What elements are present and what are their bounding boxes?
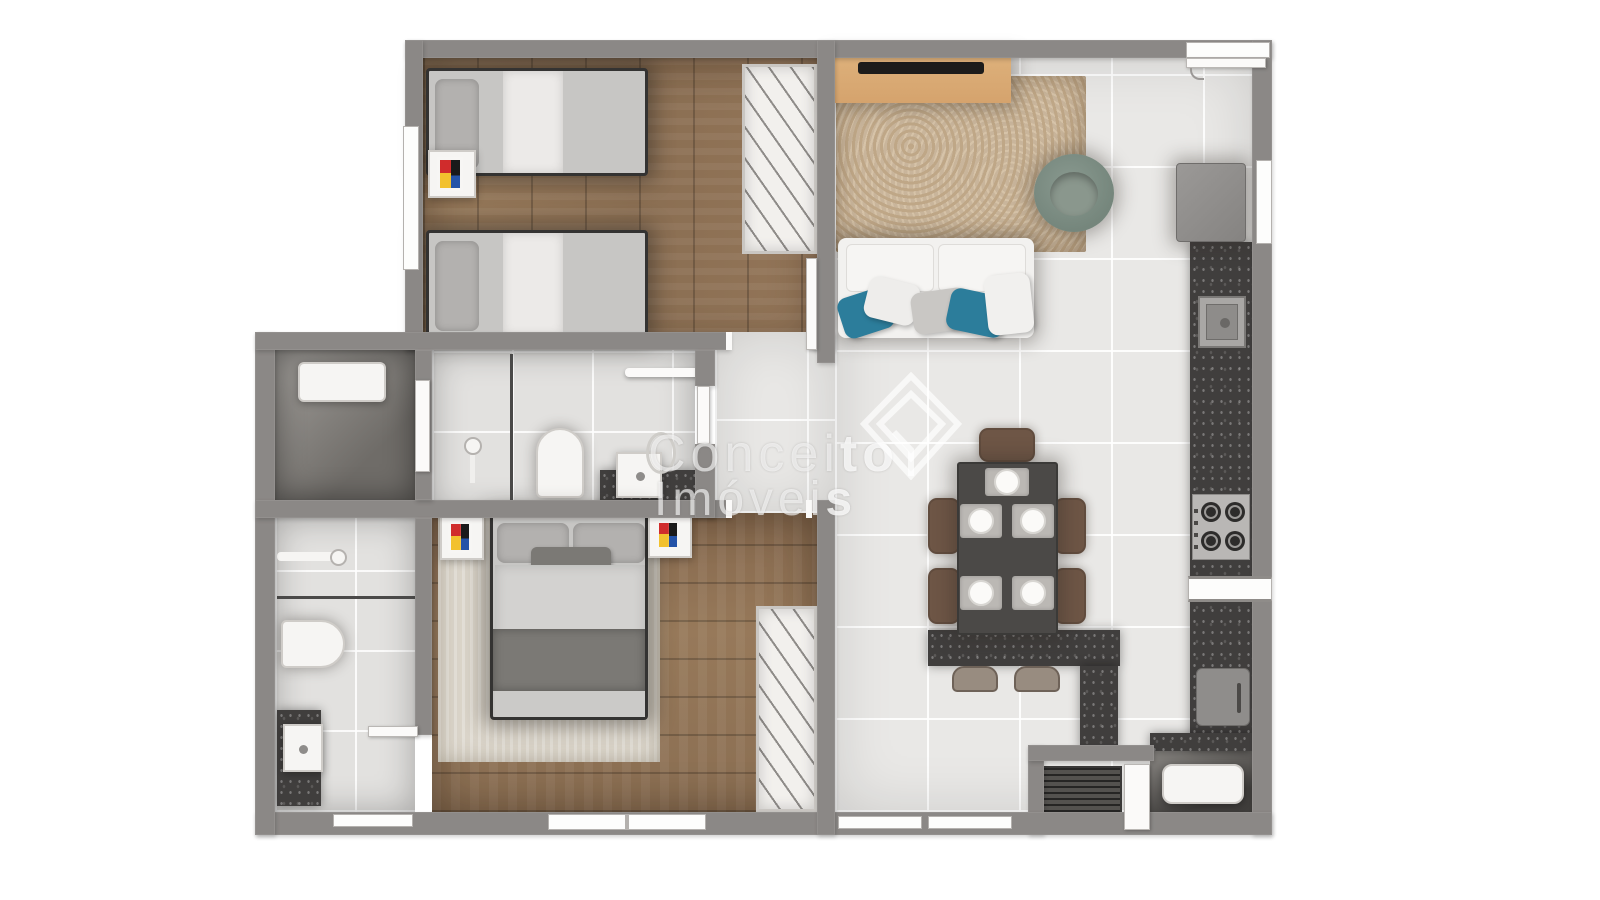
wall-master-right	[817, 500, 835, 835]
kitchen-faucet	[1220, 318, 1230, 328]
master-door-jamb-right	[806, 500, 812, 518]
laundry-sink	[1162, 764, 1244, 804]
plate-2	[1020, 508, 1046, 534]
peninsula-counter-horizontal	[928, 630, 1120, 666]
master-foot-mattress	[495, 691, 645, 717]
kitchen-pass-window	[1188, 576, 1272, 602]
stove	[1192, 494, 1250, 560]
bed2-pillow	[435, 241, 479, 331]
service-unit	[298, 362, 386, 402]
shower-arm-2	[277, 552, 335, 561]
wall-bath2-right	[415, 518, 432, 735]
sofa	[838, 238, 1034, 338]
plate-4	[1020, 580, 1046, 606]
kitchen-sink	[1198, 296, 1246, 348]
master-wall-art-right	[656, 520, 680, 550]
bathroom2-door	[368, 726, 418, 737]
bedroom1-wardrobe	[742, 64, 817, 254]
built-in-oven	[1196, 668, 1250, 726]
service-room-door	[415, 380, 430, 472]
shower-head-1	[464, 437, 482, 455]
master-wardrobe	[756, 606, 817, 812]
bedroom1-door	[806, 258, 817, 350]
wall-left	[255, 332, 275, 835]
wall-bath1-right-a	[695, 350, 715, 386]
wall-bath1-right-b	[695, 444, 715, 518]
master-blanket	[493, 629, 645, 691]
laundry-door	[1124, 764, 1150, 830]
bed1-runner	[503, 71, 563, 173]
vanity2-faucet	[299, 745, 308, 754]
stove-burner-2	[1225, 502, 1245, 522]
sofa-pillow-white-right	[983, 272, 1035, 336]
counter-stool-1	[952, 666, 998, 692]
master-bedroom-window	[548, 814, 706, 830]
bathroom2-window	[333, 814, 413, 827]
living-window-1	[838, 816, 922, 829]
shower-glass-divider-2	[277, 596, 415, 599]
fridge	[1176, 163, 1246, 242]
tv-screen	[858, 62, 984, 74]
dining-chair-right-2	[1054, 568, 1086, 624]
living-window-2	[928, 816, 1012, 829]
round-mirror	[646, 432, 676, 474]
peninsula-counter-vertical	[1080, 666, 1118, 750]
bed2-runner	[503, 233, 563, 335]
dining-chair-right-1	[1054, 498, 1086, 554]
dining-chair-left-2	[928, 568, 960, 624]
plate-3	[968, 580, 994, 606]
bedroom1-wall-art	[437, 157, 463, 191]
armchair-seat	[1050, 172, 1098, 216]
single-bed-2	[426, 230, 648, 338]
shower-arm-1	[470, 455, 475, 483]
plate-1	[968, 508, 994, 534]
entry-door-opening	[1186, 42, 1270, 58]
towel-rail	[625, 368, 703, 377]
kitchen-side-window	[1256, 160, 1272, 244]
floor-plan-render: Conceito Imóveis	[0, 0, 1600, 900]
dining-chair-left-1	[928, 498, 960, 554]
stove-knobs	[1194, 503, 1198, 549]
master-window-divider	[625, 815, 629, 829]
master-door-jamb-left	[726, 500, 732, 518]
wall-bedroom1-right	[817, 40, 835, 363]
toilet-2	[281, 620, 345, 668]
bedroom1-door-jamb-left	[726, 332, 732, 350]
shower-head-2	[330, 549, 347, 566]
wall-top	[405, 40, 1272, 58]
wall-mid-horizontal-a	[255, 332, 730, 350]
dining-chair-head	[979, 428, 1035, 462]
entry-door	[1186, 58, 1266, 68]
stove-burner-4	[1225, 531, 1245, 551]
plate-head	[994, 469, 1020, 495]
stove-burner-1	[1201, 502, 1221, 522]
vanity2-sink	[283, 724, 323, 772]
vanity1-faucet	[636, 472, 645, 481]
bathroom1-door	[697, 386, 710, 444]
laundry-wall-top	[1028, 745, 1154, 761]
double-bed	[490, 514, 648, 720]
oven-handle	[1237, 683, 1241, 713]
shower-glass-divider-1	[510, 354, 513, 500]
toilet-1	[536, 428, 584, 498]
laundry-counter	[1150, 733, 1252, 751]
bedroom1-window	[403, 126, 419, 270]
wall-hall-horizontal	[255, 500, 730, 518]
counter-stool-2	[1014, 666, 1060, 692]
master-wall-art-left	[448, 521, 472, 553]
stove-burner-3	[1201, 531, 1221, 551]
